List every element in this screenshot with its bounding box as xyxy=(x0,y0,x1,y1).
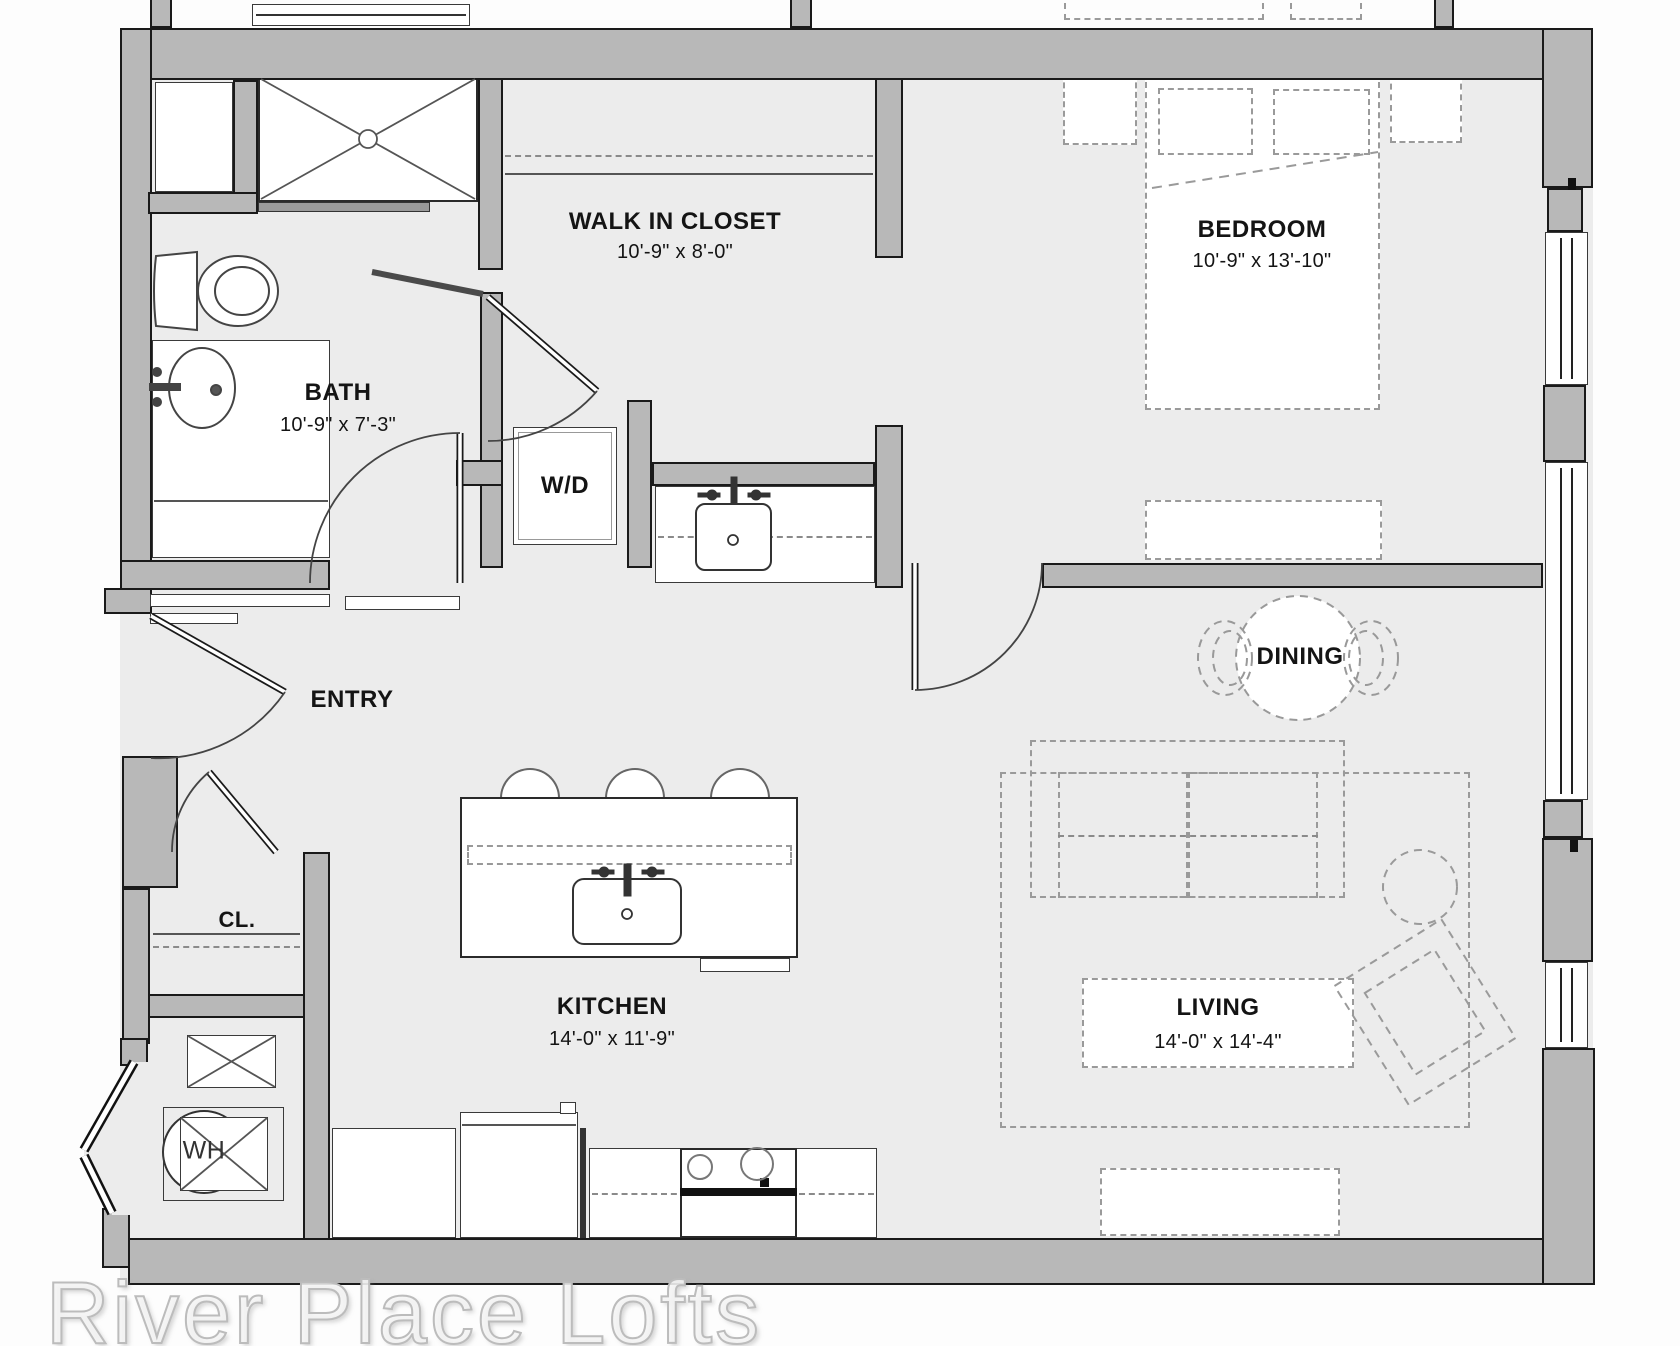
pillow xyxy=(1273,89,1370,155)
window-mullion xyxy=(1571,968,1573,1042)
threshold xyxy=(150,594,330,607)
closet-rod xyxy=(505,155,873,157)
pillow xyxy=(1158,88,1253,155)
refrigerator-handle xyxy=(560,1102,576,1114)
room-dims-walk-in-closet: 10'-9" x 8'-0" xyxy=(617,242,733,262)
window xyxy=(1545,232,1588,385)
closet-rod xyxy=(153,946,300,948)
wall-stub xyxy=(790,0,812,28)
shower-curb xyxy=(258,202,430,212)
wall-bath-south xyxy=(120,560,330,590)
room-label-entry: ENTRY xyxy=(311,688,394,712)
room-label-walk-in-closet: WALK IN CLOSET xyxy=(569,210,781,234)
wall-left xyxy=(120,28,152,590)
shower xyxy=(258,76,478,202)
wall-right-bottom-corner xyxy=(1542,1048,1595,1285)
wall-bedroom-west-lower xyxy=(875,425,903,588)
window-mullion xyxy=(1560,468,1562,794)
island-dishwasher xyxy=(700,958,790,972)
room-label-dining: DINING xyxy=(1257,645,1344,669)
range-knob xyxy=(760,1178,769,1187)
watermark: River Place Lofts xyxy=(46,1262,762,1346)
vanity xyxy=(152,340,330,558)
cabinet-divider xyxy=(580,1128,586,1238)
living-label-box xyxy=(1082,978,1354,1068)
wall-counter-back xyxy=(652,462,875,486)
wall-right-pier xyxy=(1547,188,1583,232)
bath-niche xyxy=(155,82,233,192)
room-label-bedroom: BEDROOM xyxy=(1198,218,1327,242)
island-sink xyxy=(572,878,682,945)
room-label-living: LIVING xyxy=(1176,996,1259,1020)
room-label-laundry: W/D xyxy=(541,474,589,498)
nightstand xyxy=(1063,73,1137,145)
room-dims-living: 14'-0" x 14'-4" xyxy=(1154,1032,1282,1052)
tv-console xyxy=(1100,1168,1340,1236)
wall-right-pier xyxy=(1543,800,1583,838)
wall-stub xyxy=(150,0,172,28)
closet-shelf xyxy=(505,173,873,175)
wall-top xyxy=(120,28,1593,80)
room-dims-bath: 10'-9" x 7'-3" xyxy=(280,415,396,435)
vanity-divider xyxy=(154,500,328,502)
nightstand xyxy=(1390,73,1462,143)
room-label-water-heater: WH xyxy=(183,1139,226,1164)
wall-tick xyxy=(1568,178,1576,190)
wall-kitchen-west xyxy=(303,852,330,1240)
wall-right-corner xyxy=(1542,28,1593,188)
window-mullion xyxy=(1560,238,1562,379)
dresser xyxy=(1145,500,1382,560)
wall-tick xyxy=(1570,840,1578,852)
floor-plan: WALK IN CLOSET 10'-9" x 8'-0" BEDROOM 10… xyxy=(0,0,1680,1346)
room-label-bath: BATH xyxy=(305,381,372,405)
threshold xyxy=(345,596,460,610)
window-mullion xyxy=(1560,968,1562,1042)
cutoff-fixture-outline xyxy=(1064,0,1264,20)
wall-bay-block xyxy=(120,1038,148,1066)
sofa-seat-line xyxy=(1058,835,1318,837)
cutoff-fixture-outline xyxy=(1290,0,1362,20)
counter-sink xyxy=(695,503,772,571)
closet-shelf xyxy=(153,933,300,935)
refrigerator xyxy=(460,1112,578,1238)
wall-wd-west xyxy=(480,292,503,568)
wall-wd-east xyxy=(627,400,652,568)
wall-bedroom-south xyxy=(1042,563,1543,588)
wall-niche-south xyxy=(148,192,258,214)
wall-right-pier xyxy=(1543,385,1586,462)
wall-bedroom-west-upper xyxy=(875,78,903,258)
refrigerator-top-line xyxy=(462,1124,576,1126)
wall-door-jamb xyxy=(456,460,503,486)
base-cabinet xyxy=(332,1128,456,1238)
wall-bay-block xyxy=(102,1208,130,1268)
window-mullion xyxy=(1571,238,1573,379)
range-front xyxy=(680,1188,797,1196)
window xyxy=(252,4,470,26)
wall-entry-stub xyxy=(122,756,178,888)
wall-left-lower xyxy=(122,888,150,1044)
room-label-closet: CL. xyxy=(219,909,256,931)
room-dims-bedroom: 10'-9" x 13'-10" xyxy=(1193,251,1332,271)
wall-stub xyxy=(1434,0,1454,28)
wall-shower-east xyxy=(478,78,503,270)
window-mullion xyxy=(1571,468,1573,794)
wall-right-pier xyxy=(1542,838,1593,962)
wall-niche-east xyxy=(233,80,258,207)
equipment-box xyxy=(187,1035,276,1088)
threshold xyxy=(150,613,238,624)
room-label-kitchen: KITCHEN xyxy=(557,995,667,1019)
wall-step xyxy=(104,588,152,614)
window xyxy=(1545,462,1588,800)
window xyxy=(1545,962,1588,1048)
island-overhang xyxy=(467,845,792,865)
room-dims-kitchen: 14'-0" x 11'-9" xyxy=(549,1029,675,1049)
